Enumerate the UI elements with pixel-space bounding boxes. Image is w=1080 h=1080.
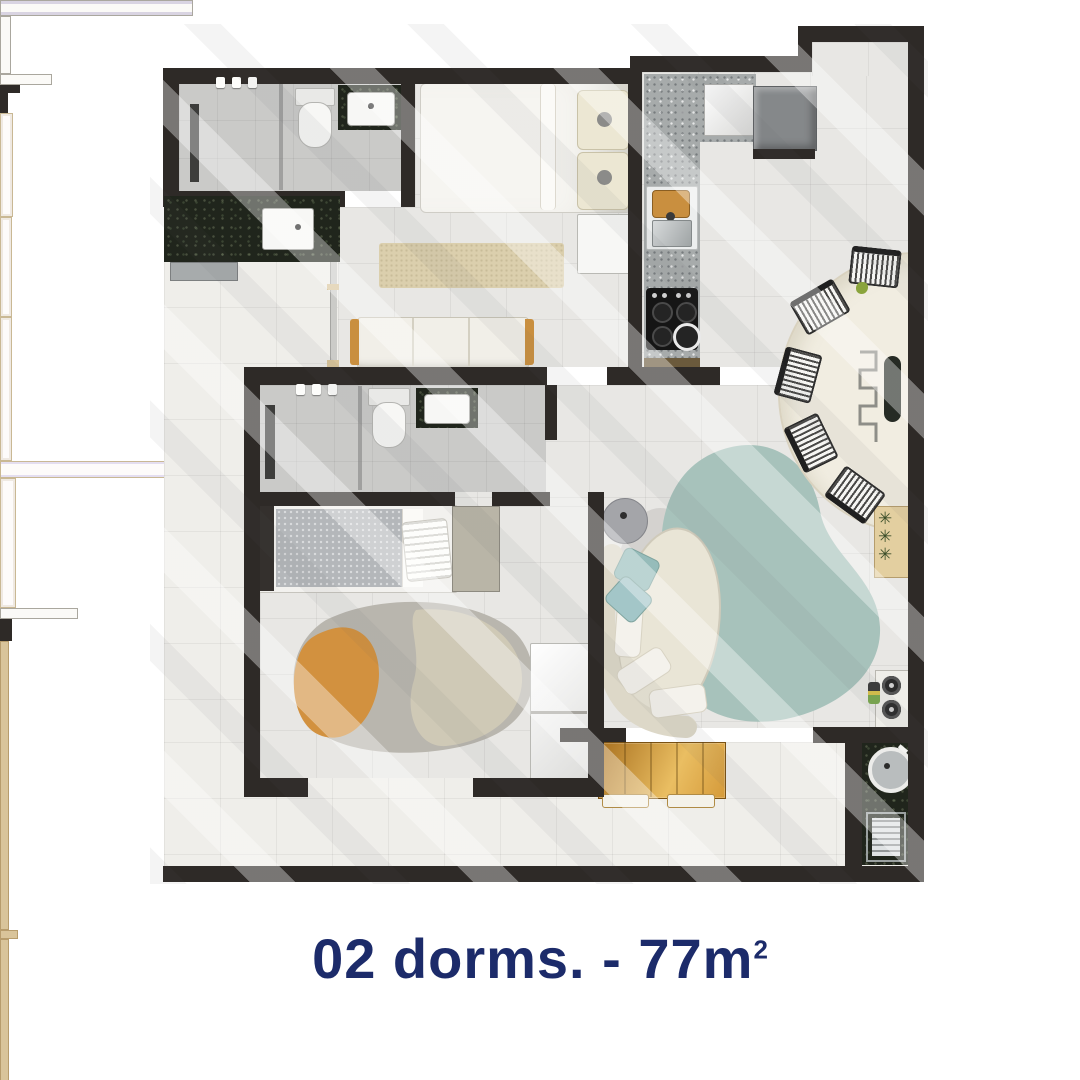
bedroom2-rug (266, 590, 550, 762)
laundry-drain-icon (884, 763, 890, 769)
burner-icon (652, 302, 673, 323)
shower-glass-panel (358, 386, 362, 490)
wall (244, 492, 455, 506)
wall (630, 56, 812, 72)
pillow-button-icon (597, 112, 612, 127)
terrace-rail (0, 641, 9, 930)
toilet-bowl (298, 102, 332, 148)
wall (588, 492, 604, 797)
wall (798, 26, 812, 60)
caption: 02 dorms. - 77m2 (0, 926, 1080, 991)
master-bench (357, 317, 529, 369)
wall (473, 778, 604, 797)
wall (163, 68, 179, 195)
entry-nook-floor (812, 42, 908, 76)
burner-icon (676, 302, 697, 323)
wall (628, 68, 642, 385)
gourmet-faucet-icon (295, 224, 301, 230)
bedroom2-side-window (0, 317, 12, 461)
wall (163, 866, 924, 882)
kitchen-window (0, 478, 16, 608)
terrace-table-plank-lines (598, 742, 724, 797)
wall (908, 26, 924, 882)
shower-glass-panel (279, 84, 283, 190)
shower-niche (190, 104, 199, 182)
wall (244, 778, 308, 797)
wall (560, 728, 626, 742)
door-hinge-hardware (0, 85, 20, 93)
table-vase (884, 356, 901, 422)
entry-door-hardware (0, 619, 12, 641)
master-bedroom-rug (379, 243, 564, 288)
wall (253, 367, 547, 385)
bathroom2-window (0, 217, 12, 317)
wall (492, 492, 550, 506)
bed2-blanket (276, 509, 402, 587)
shower-bar (265, 405, 275, 479)
bath2-sink-basin (424, 394, 470, 424)
wall (798, 26, 924, 42)
bench-cushion-line (412, 318, 414, 366)
wardrobe-divider (531, 711, 587, 714)
bathroom2-door (0, 16, 11, 74)
bed2-headboard (258, 505, 274, 591)
floor-plan-image: ✳ ✳ ✳ (0, 0, 1080, 1080)
bed-duvet-fold (540, 84, 556, 210)
ladder-shelf-icon (858, 350, 882, 448)
towel-hook-icon (216, 77, 225, 88)
towel-hook-icon (328, 384, 337, 395)
bedroom2-window (0, 461, 167, 478)
bedroom2-door (0, 74, 52, 85)
glazing-post (327, 284, 339, 290)
terrace-chair (602, 794, 649, 808)
refrigerator (753, 86, 817, 151)
sliding-door (0, 0, 193, 16)
toilet-bowl (372, 402, 406, 448)
wall (813, 727, 908, 743)
wall (607, 367, 720, 385)
wall (244, 367, 260, 797)
bench-fringe (525, 319, 534, 365)
lounge-sofa (594, 515, 730, 745)
burner-icon (673, 323, 701, 351)
kitchen-sink-basin (652, 220, 692, 247)
towel-hook-icon (248, 77, 257, 88)
pillow-button-icon (597, 170, 612, 185)
bed2-side-cabinet (452, 506, 500, 592)
cleaning-items (868, 682, 880, 704)
wardrobe (530, 643, 590, 785)
washing-machine (866, 812, 906, 862)
towel-hook-icon (312, 384, 321, 395)
gourmet-sink (262, 208, 314, 250)
cart-wheel-icon (882, 700, 901, 719)
master-nightstand (577, 214, 632, 274)
bench-fringe (350, 319, 359, 365)
glazing-post (327, 360, 339, 367)
bath1-sink-basin (347, 92, 395, 126)
cooktop-knob-icon (662, 293, 667, 298)
bath1-faucet-icon (368, 103, 374, 109)
cooktop-knob-icon (652, 293, 657, 298)
towel-hook-icon (296, 384, 305, 395)
bench-cushion-line (468, 318, 470, 366)
wall (545, 385, 557, 440)
dining-chair (848, 245, 902, 288)
terrace-chair (667, 794, 715, 808)
burner-icon (652, 326, 673, 347)
plant-icon: ✳ (878, 510, 892, 527)
plant-icon: ✳ (878, 528, 892, 545)
wall (401, 82, 415, 207)
wall (753, 149, 815, 159)
caption-text: 02 dorms. - 77m (312, 927, 753, 990)
wall (845, 742, 862, 866)
cooktop-knob-icon (686, 293, 691, 298)
caption-superscript: 2 (753, 934, 767, 964)
cart-wheel-icon (882, 676, 901, 695)
bed2-pillow (401, 518, 453, 582)
kitchen-upper-cabinet (704, 84, 754, 136)
bathroom1-window (0, 113, 13, 217)
entry-door (0, 608, 78, 619)
towel-hook-icon (232, 77, 241, 88)
counter-end-shelf (644, 358, 700, 367)
plant-icon: ✳ (878, 546, 892, 563)
gourmet-grill (170, 262, 238, 281)
cooktop-knob-icon (676, 293, 681, 298)
door-hinge-hardware (0, 93, 8, 113)
